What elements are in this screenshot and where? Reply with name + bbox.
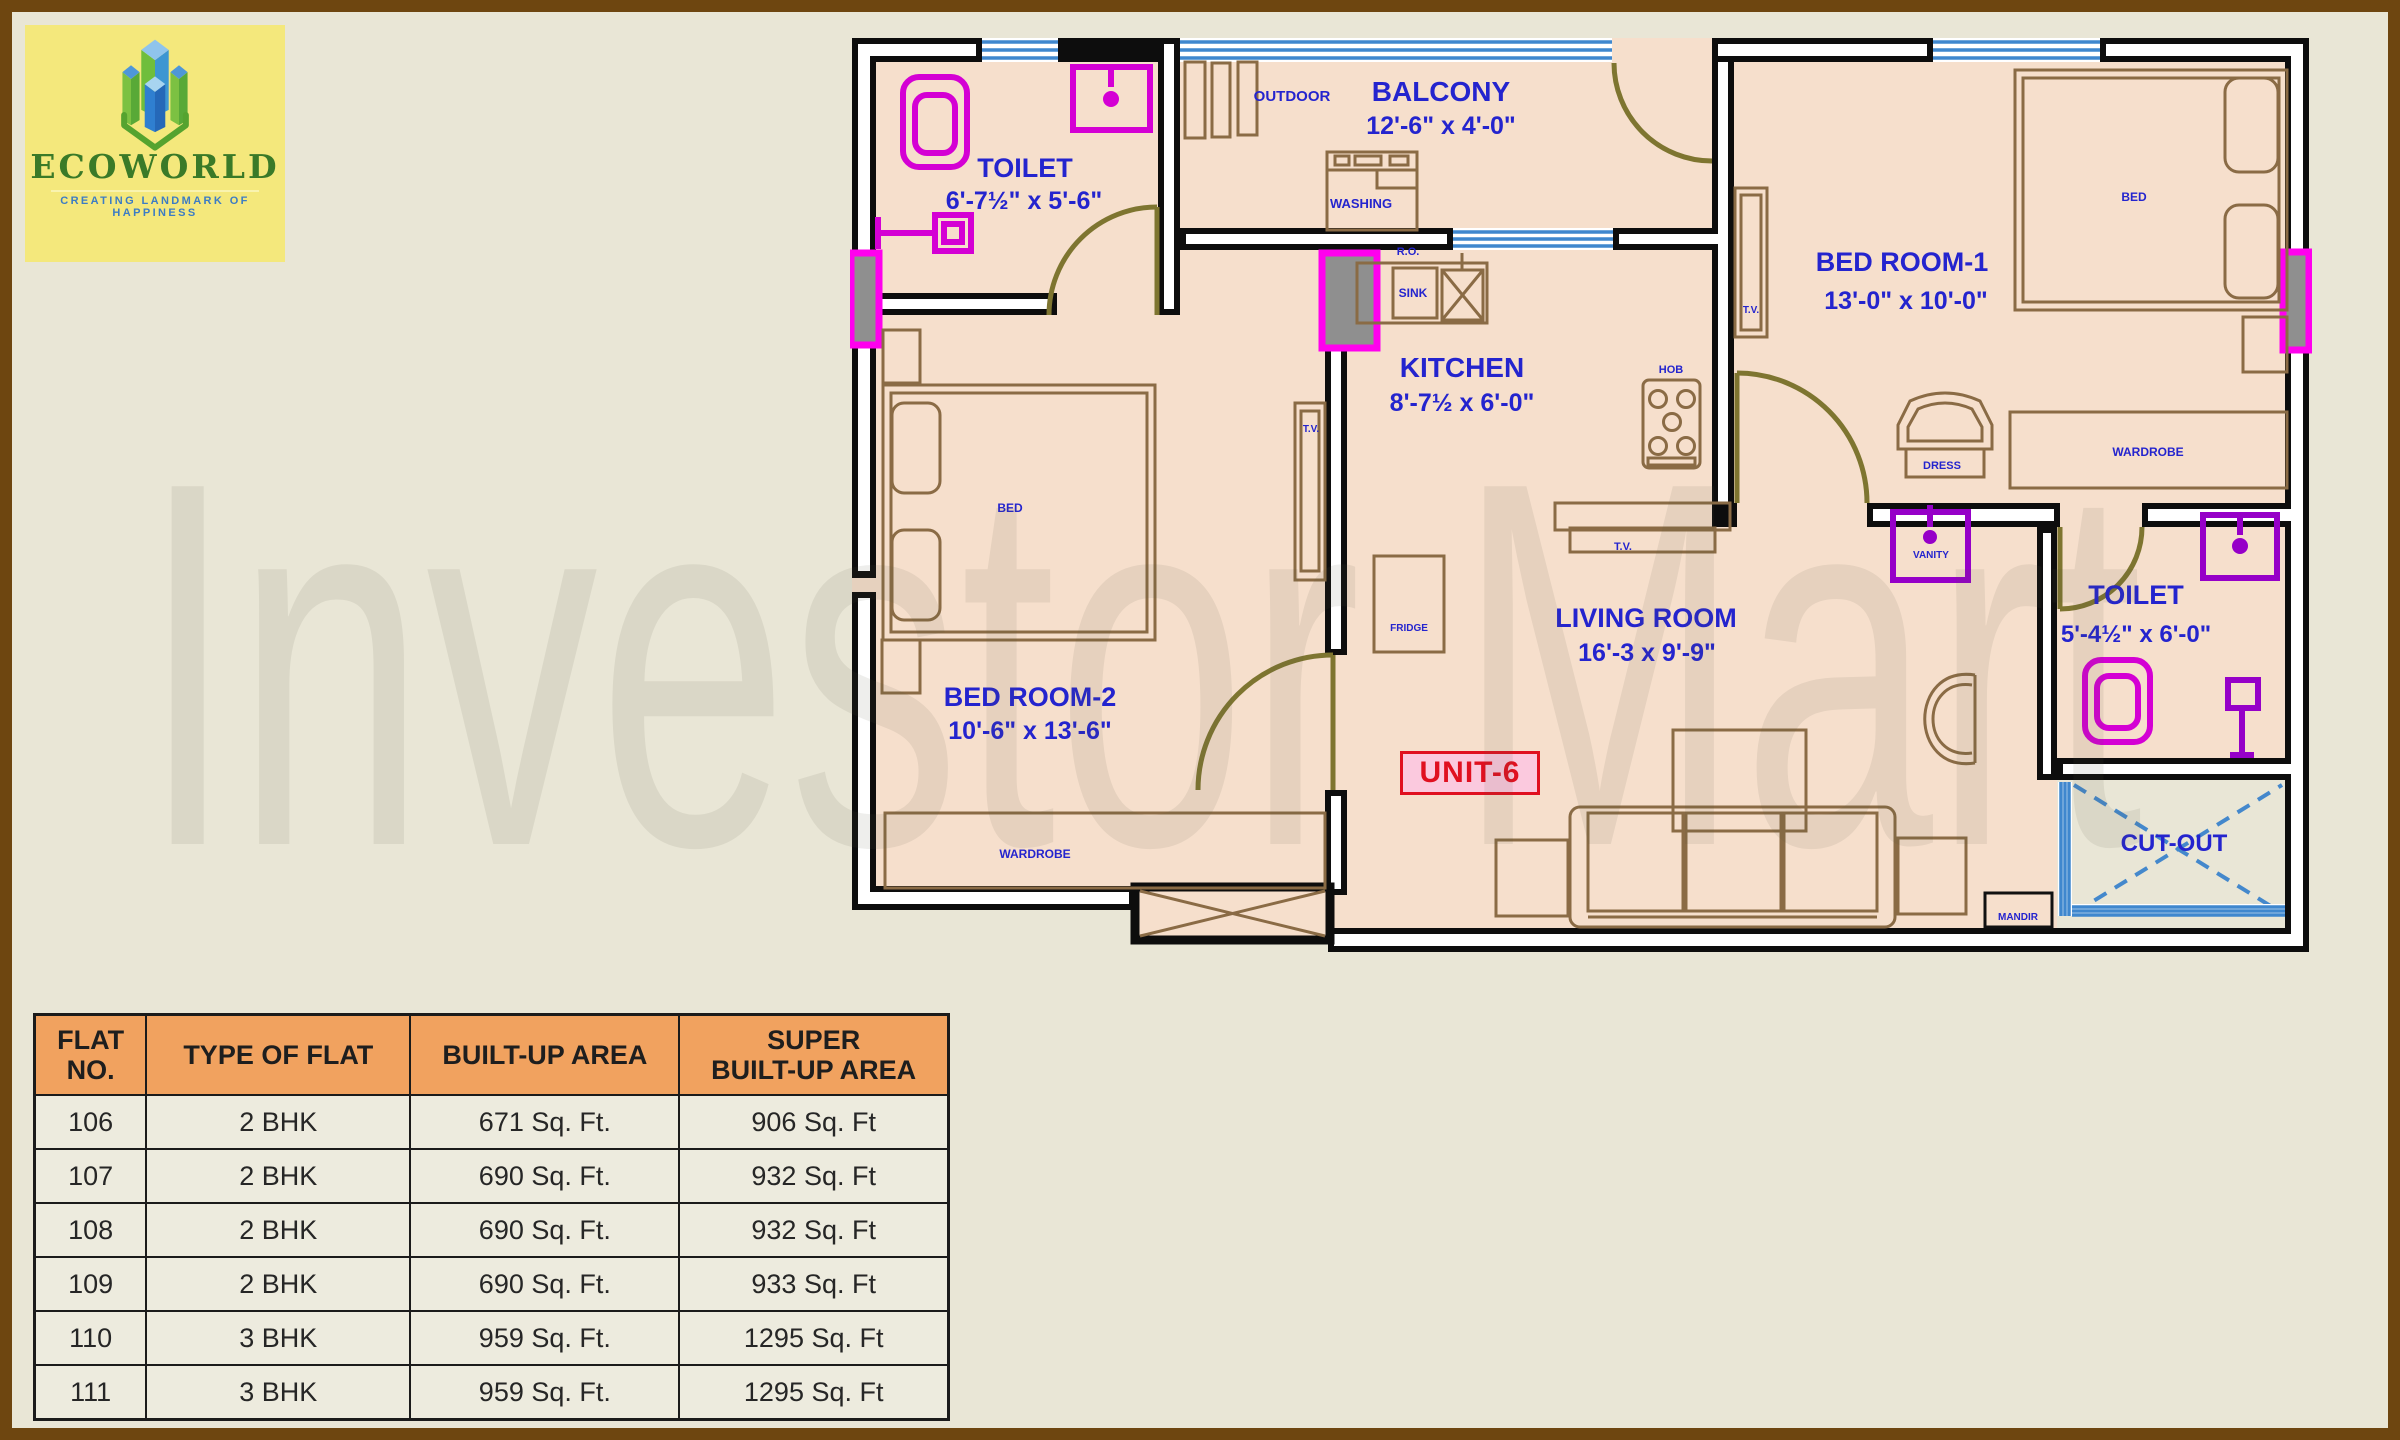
bedroom1-name: BED ROOM-1 [1816, 247, 1989, 277]
area-table-row: 1082 BHK690 Sq. Ft.932 Sq. Ft [35, 1203, 949, 1257]
tv-passage-label: T.V. [1743, 305, 1760, 316]
bedroom2-name: BED ROOM-2 [944, 682, 1117, 712]
area-table-cell: 1295 Sq. Ft [679, 1311, 948, 1365]
sink-label: SINK [1399, 286, 1428, 300]
bedroom2-dims: 10'-6" x 13'-6" [948, 717, 1111, 745]
area-table-cell: 2 BHK [146, 1257, 410, 1311]
ecoworld-logo-card: ECOWORLD CREATING LANDMARK OF HAPPINESS [25, 25, 285, 262]
living-name: LIVING ROOM [1555, 603, 1737, 633]
balcony-dims: 12'-6" x 4'-0" [1366, 112, 1516, 140]
toilet1-name: TOILET [977, 153, 1073, 183]
area-table-cell: 109 [35, 1257, 147, 1311]
area-table-header-cell: TYPE OF FLAT [146, 1015, 410, 1096]
area-table-cell: 2 BHK [146, 1203, 410, 1257]
kitchen-name: KITCHEN [1400, 352, 1524, 383]
area-table-row: 1103 BHK959 Sq. Ft.1295 Sq. Ft [35, 1311, 949, 1365]
area-table-cell: 906 Sq. Ft [679, 1095, 948, 1149]
area-table-cell: 671 Sq. Ft. [410, 1095, 679, 1149]
ecoworld-buildings-icon [95, 31, 215, 151]
tv-bed2-label: T.V. [1303, 424, 1320, 435]
tv-kitchen-label: T.V. [1614, 541, 1632, 553]
toilet2-dims: 5'-4½" x 6'-0" [2061, 621, 2211, 648]
area-table-cell: 932 Sq. Ft [679, 1149, 948, 1203]
bedroom1-dims: 13'-0" x 10'-0" [1824, 287, 1987, 315]
area-table-cell: 106 [35, 1095, 147, 1149]
outdoor-label: OUTDOOR [1254, 88, 1331, 105]
area-table-cell: 959 Sq. Ft. [410, 1365, 679, 1420]
area-table-cell: 933 Sq. Ft [679, 1257, 948, 1311]
area-table-cell: 111 [35, 1365, 147, 1420]
fridge-label: FRIDGE [1390, 623, 1428, 634]
logo-divider [51, 190, 259, 192]
area-table-header-cell: BUILT-UP AREA [410, 1015, 679, 1096]
bed2-label: BED [997, 501, 1023, 515]
wardrobe-bed1-label: WARDROBE [2112, 445, 2183, 459]
hob-label: HOB [1659, 364, 1684, 376]
area-table-cell: 690 Sq. Ft. [410, 1203, 679, 1257]
logo-tagline: CREATING LANDMARK OF HAPPINESS [25, 195, 285, 219]
toilet2-name: TOILET [2088, 580, 2184, 610]
mandir-label: MANDIR [1998, 912, 2039, 923]
area-table-cell: 3 BHK [146, 1365, 410, 1420]
area-table-cell: 690 Sq. Ft. [410, 1149, 679, 1203]
duct-box [1135, 887, 1330, 940]
logo-name: ECOWORLD [25, 147, 285, 186]
cutout-label: CUT-OUT [2121, 830, 2228, 857]
area-table-cell: 110 [35, 1311, 147, 1365]
floor-plan-drawing: TOILET6'-7½" x 5'-6"OUTDOORBALCONY12'-6"… [850, 25, 2312, 955]
area-table-cell: 108 [35, 1203, 147, 1257]
area-table-row: 1113 BHK959 Sq. Ft.1295 Sq. Ft [35, 1365, 949, 1420]
area-table-row: 1092 BHK690 Sq. Ft.933 Sq. Ft [35, 1257, 949, 1311]
brochure-page: ECOWORLD CREATING LANDMARK OF HAPPINESS [0, 0, 2400, 1440]
area-table-cell: 1295 Sq. Ft [679, 1365, 948, 1420]
balcony-name: BALCONY [1372, 76, 1511, 107]
area-table-cell: 959 Sq. Ft. [410, 1311, 679, 1365]
dress-label: DRESS [1923, 460, 1961, 472]
area-table-cell: 107 [35, 1149, 147, 1203]
floor-plan: TOILET6'-7½" x 5'-6"OUTDOORBALCONY12'-6"… [850, 25, 2312, 955]
area-table-header-cell: SUPER BUILT-UP AREA [679, 1015, 948, 1096]
unit-badge: UNIT-6 [1400, 751, 1540, 795]
area-table-row: 1062 BHK671 Sq. Ft.906 Sq. Ft [35, 1095, 949, 1149]
area-table-cell: 932 Sq. Ft [679, 1203, 948, 1257]
area-table-header-cell: FLAT NO. [35, 1015, 147, 1096]
area-table-header-row: FLAT NO.TYPE OF FLATBUILT-UP AREASUPER B… [35, 1015, 949, 1096]
area-table-cell: 3 BHK [146, 1311, 410, 1365]
bed1-label: BED [2121, 190, 2147, 204]
living-dims: 16'-3 x 9'-9" [1578, 639, 1716, 667]
washing-label: WASHING [1330, 196, 1392, 211]
area-table-cell: 690 Sq. Ft. [410, 1257, 679, 1311]
area-table-row: 1072 BHK690 Sq. Ft.932 Sq. Ft [35, 1149, 949, 1203]
kitchen-dims: 8'-7½ x 6'-0" [1390, 389, 1535, 417]
area-table-cell: 2 BHK [146, 1095, 410, 1149]
ro-label: R.O. [1397, 246, 1420, 258]
vanity-label: VANITY [1913, 550, 1949, 561]
area-table-cell: 2 BHK [146, 1149, 410, 1203]
toilet1-dims: 6'-7½" x 5'-6" [946, 187, 1103, 215]
area-table-head: FLAT NO.TYPE OF FLATBUILT-UP AREASUPER B… [35, 1015, 949, 1096]
flat-area-table: FLAT NO.TYPE OF FLATBUILT-UP AREASUPER B… [33, 1013, 950, 1421]
wardrobe-bed2-label: WARDROBE [999, 847, 1070, 861]
area-table-body: 1062 BHK671 Sq. Ft.906 Sq. Ft1072 BHK690… [35, 1095, 949, 1420]
